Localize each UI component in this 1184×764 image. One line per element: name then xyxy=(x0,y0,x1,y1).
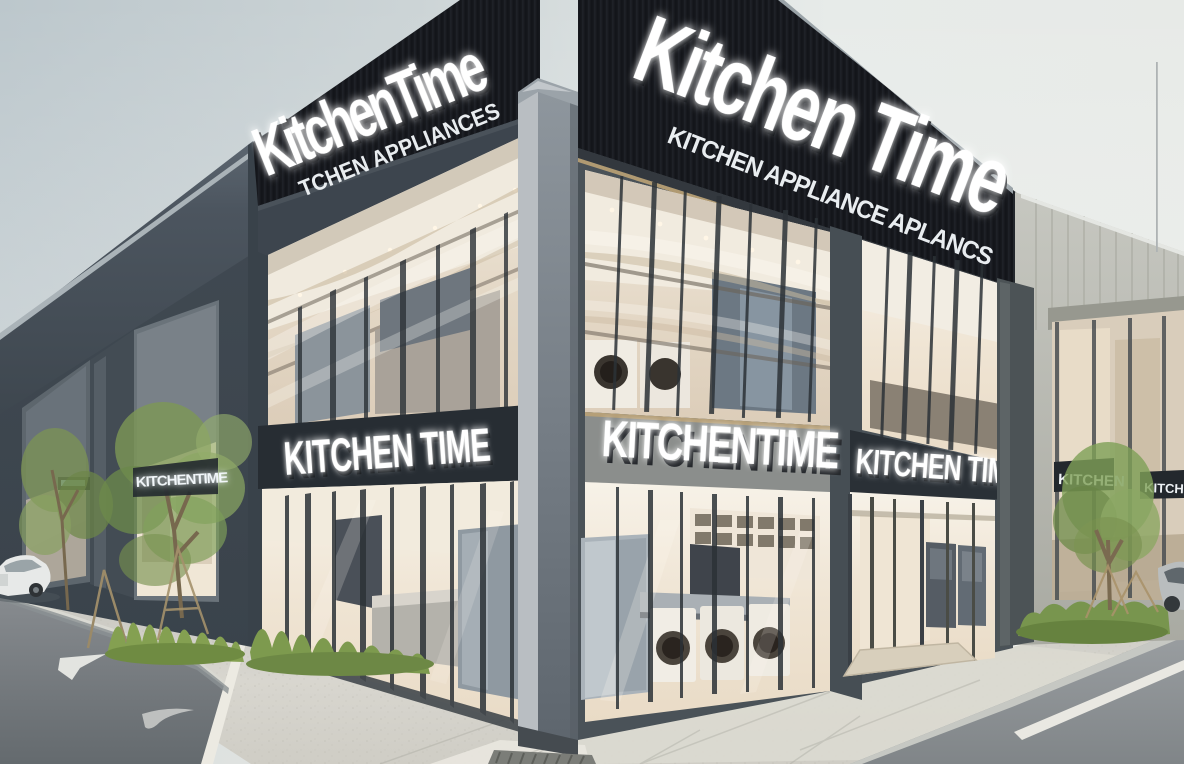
svg-text:KITCHENTIME: KITCHENTIME xyxy=(600,409,840,480)
